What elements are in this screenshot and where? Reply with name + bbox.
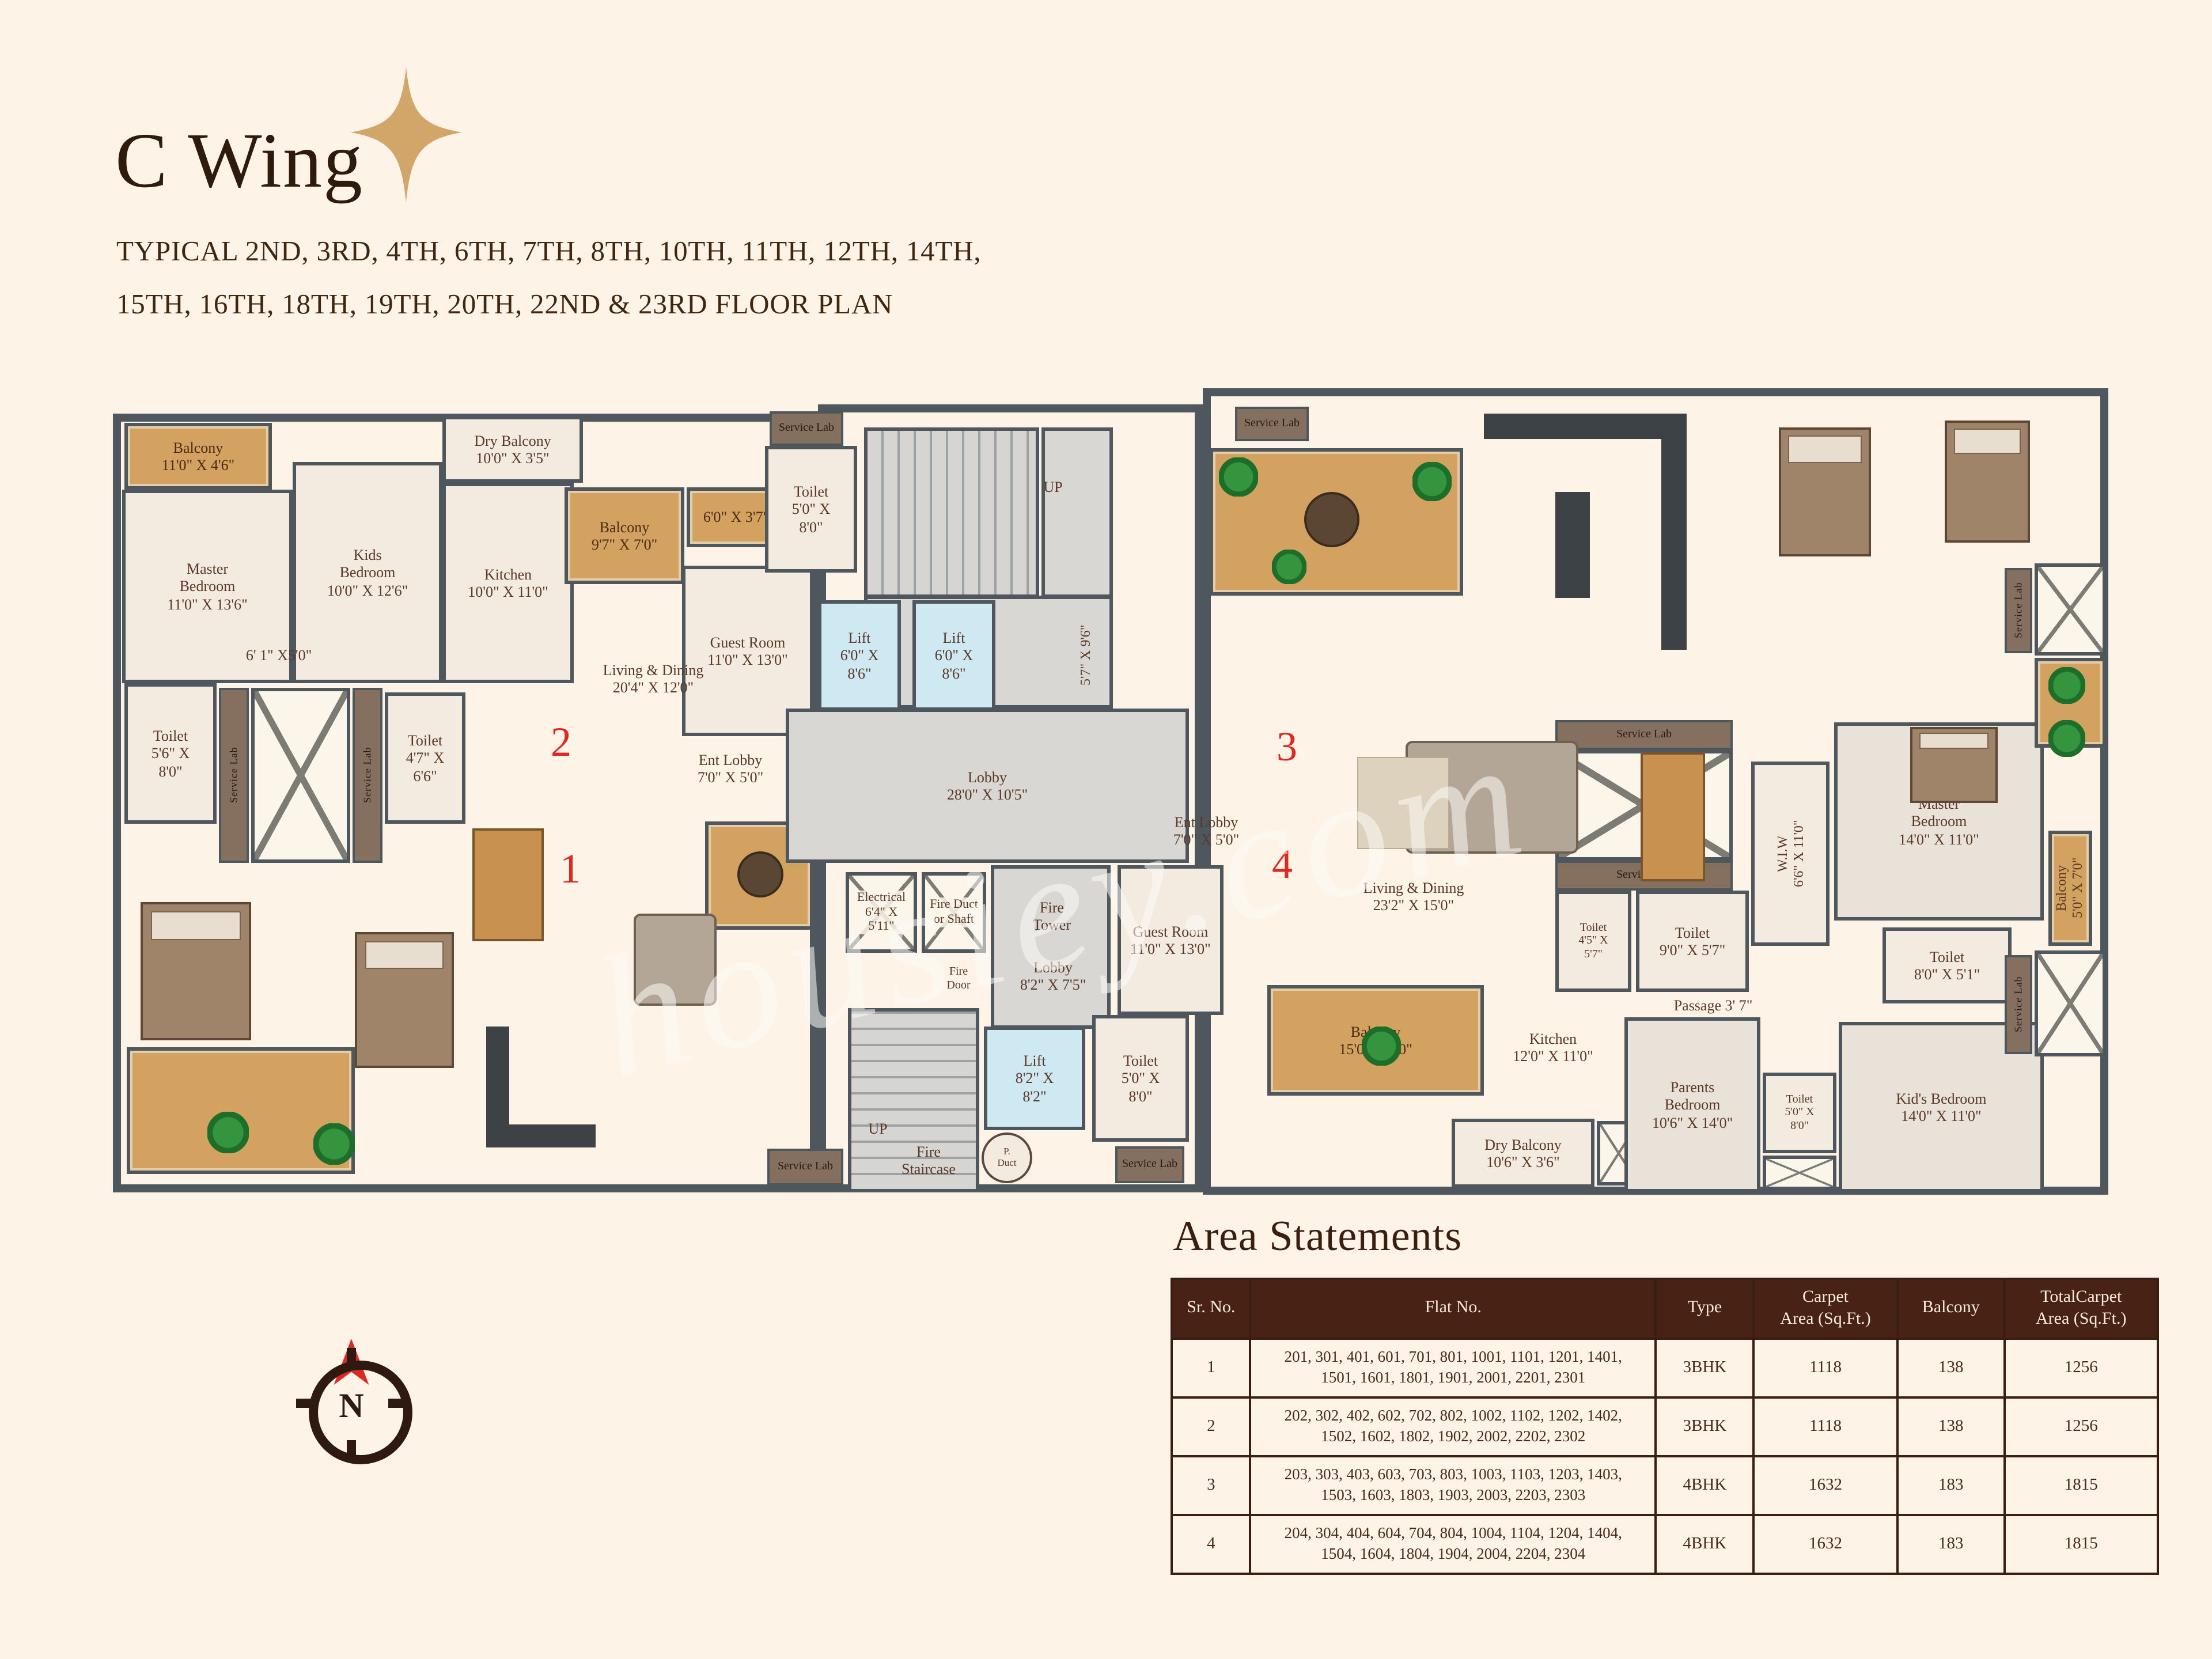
label-passage: Passage 3' 7"	[1627, 992, 1800, 1020]
label-wiw: W.I.W 6'6" X 11'0"	[1763, 768, 1820, 939]
label-fire-door: Fire Door	[926, 960, 991, 999]
floor-plan-sheet: C Wing TYPICAL 2ND, 3RD, 4TH, 6TH, 7TH, …	[0, 0, 2212, 1659]
compass-label: N	[294, 1387, 409, 1426]
room-guest-room-flat4: Guest Room 11'0" X 13'0"	[1118, 865, 1224, 1015]
rug-icon	[1357, 757, 1449, 849]
fire-tower-area	[991, 865, 1111, 1029]
lift-1: Lift 6'0" X 8'6"	[818, 600, 901, 711]
shaft-electrical: Electrical 6'4" X 5'11"	[846, 872, 917, 953]
service-lab-right-1: Service Lab	[1555, 720, 1733, 750]
label-passage-61x50: 6' 1" X5'0"	[221, 641, 336, 671]
plant-icon	[207, 1112, 249, 1153]
label-stair-dim: 5'7" X 9'6"	[1071, 603, 1101, 709]
table-cell-balcony: 138	[1897, 1338, 2004, 1397]
room-toilet-80x51: Toilet 8'0" X 5'1"	[1883, 927, 2012, 1003]
dining-table-icon	[472, 828, 544, 941]
room-kitchen-flat2: Kitchen 10'0" X 11'0"	[442, 483, 574, 683]
subtitle-line1: TYPICAL 2ND, 3RD, 4TH, 6TH, 7TH, 8TH, 10…	[116, 226, 981, 279]
table-column-header: Carpet Area (Sq.Ft.)	[1753, 1279, 1897, 1338]
round-table-icon	[737, 851, 783, 897]
table-cell-carpet: 1118	[1753, 1397, 1897, 1456]
room-toilet-56x80: Toilet 5'6" X 8'0"	[124, 683, 217, 824]
table-row: 3203, 303, 403, 603, 703, 803, 1003, 110…	[1172, 1456, 2158, 1514]
label-kitchen-flat4: Kitchen 12'0" X 11'0"	[1486, 1022, 1620, 1073]
service-lab-left-1: Service Lab	[219, 688, 249, 863]
p-duct: P. Duct	[982, 1132, 1032, 1183]
service-lab-top-1: Service Lab	[770, 411, 843, 446]
area-statements-table: Sr. No.Flat No.TypeCarpet Area (Sq.Ft.)B…	[1171, 1278, 2159, 1574]
subtitle: TYPICAL 2ND, 3RD, 4TH, 6TH, 7TH, 8TH, 10…	[116, 226, 981, 332]
table-column-header: Balcony	[1897, 1279, 2004, 1338]
table-cell-balcony: 183	[1897, 1514, 2004, 1573]
room-balcony-flat2: Balcony 11'0" X 4'6"	[124, 423, 272, 490]
shaft-fire-duct: Fire Duct or Shaft	[922, 872, 986, 953]
service-lab-br: Service Lab	[2005, 955, 2032, 1054]
room-dry-balcony-flat4: Dry Balcony 10'6" X 3'6"	[1452, 1119, 1594, 1188]
table-column-header: TotalCarpet Area (Sq.Ft.)	[2004, 1279, 2158, 1338]
sofa-icon	[634, 914, 717, 1006]
room-balcony-97x70: Balcony 9'7" X 7'0"	[565, 487, 684, 584]
table-cell-type: 4BHK	[1656, 1456, 1753, 1514]
area-statements-title: Area Statements	[1173, 1212, 2161, 1262]
label-balcony-50x70: Balcony 5'0" X 7'0"	[2051, 833, 2090, 944]
floor-plan: housiey.com Balcony 11'0" X 4'6"Master B…	[106, 381, 2111, 1197]
label-up-main: UP	[1028, 474, 1078, 501]
service-lab-top-2: Service Lab	[1235, 407, 1309, 441]
table-cell-sr: 1	[1172, 1338, 1251, 1397]
unit-number-2: 2	[544, 718, 578, 766]
table-cell-flats: 204, 304, 404, 604, 704, 804, 1004, 1104…	[1251, 1514, 1656, 1573]
area-statements: Area Statements Sr. No.Flat No.TypeCarpe…	[1171, 1212, 2161, 1574]
dining-table-icon	[1641, 752, 1705, 881]
table-cell-type: 3BHK	[1656, 1397, 1753, 1456]
room-toilet-90x57: Toilet 9'0" X 5'7"	[1636, 891, 1749, 992]
table-cell-total: 1815	[2004, 1456, 2158, 1514]
page-title: C Wing	[115, 115, 363, 206]
table-header-row: Sr. No.Flat No.TypeCarpet Area (Sq.Ft.)B…	[1172, 1279, 2158, 1338]
unit-number-1: 1	[553, 844, 588, 893]
bed-icon	[141, 902, 251, 1040]
room-dry-balcony-flat2: Dry Balcony 10'0" X 3'5"	[442, 416, 583, 483]
table-body: 1201, 301, 401, 601, 701, 801, 1001, 110…	[1172, 1338, 2158, 1573]
sparkle-icon	[346, 67, 467, 203]
plant-icon	[313, 1123, 355, 1165]
table-column-header: Type	[1656, 1279, 1753, 1338]
plant-icon	[1412, 462, 1452, 501]
table-cell-flats: 203, 303, 403, 603, 703, 803, 1003, 1103…	[1251, 1456, 1656, 1514]
bed-icon	[1779, 427, 1871, 556]
stairs-main	[864, 427, 1039, 598]
unit-number-4: 4	[1265, 840, 1300, 888]
label-fire-lobby: Lobby 8'2" X 7'5"	[1000, 953, 1106, 999]
table-cell-sr: 2	[1172, 1397, 1251, 1456]
shaft-left	[251, 688, 350, 863]
service-lab-bottom-2: Service Lab	[1115, 1146, 1184, 1183]
unit-number-3: 3	[1270, 722, 1304, 771]
label-living-dining-flat4: Living & Dining 23'2" X 15'0"	[1321, 871, 1506, 922]
plant-icon	[2048, 667, 2085, 704]
table-cell-type: 3BHK	[1656, 1338, 1753, 1397]
room-toilet-core-top: Toilet 5'0" X 8'0"	[765, 446, 857, 573]
bed-icon	[1945, 421, 2030, 543]
table-cell-flats: 202, 302, 402, 602, 702, 802, 1002, 1102…	[1251, 1397, 1656, 1456]
table-cell-carpet: 1118	[1753, 1338, 1897, 1397]
plant-icon	[1272, 550, 1306, 584]
label-ent-lobby-left: Ent Lobby 7'0" X 5'0"	[673, 745, 788, 791]
service-lab-bottom-1: Service Lab	[767, 1149, 843, 1185]
table-row: 1201, 301, 401, 601, 701, 801, 1001, 110…	[1172, 1338, 2158, 1397]
table-cell-carpet: 1632	[1753, 1456, 1897, 1514]
room-parents-bedroom: Parents Bedroom 10'6" X 14'0"	[1624, 1017, 1760, 1192]
table-cell-balcony: 138	[1897, 1397, 2004, 1456]
shaft-kids	[1763, 1156, 1836, 1190]
table-cell-sr: 3	[1172, 1456, 1251, 1514]
bed-icon	[355, 932, 454, 1068]
plant-icon	[1219, 457, 1258, 497]
service-lab-left-2: Service Lab	[353, 688, 382, 863]
shaft-br	[2035, 950, 2106, 1056]
label-fire-tower: Fire Tower	[1012, 893, 1092, 939]
table-cell-total: 1256	[2004, 1397, 2158, 1456]
table-row: 2202, 302, 402, 602, 702, 802, 1002, 110…	[1172, 1397, 2158, 1456]
kitchen-counter-icon	[1484, 414, 1685, 439]
room-toilet-45x57: Toilet 4'5" X 5'7"	[1555, 891, 1631, 992]
table-cell-total: 1815	[2004, 1514, 2158, 1573]
lift-2: Lift 6'0" X 8'6"	[912, 600, 995, 711]
service-lab-tr: Service Lab	[2005, 568, 2032, 653]
label-ent-lobby-right: Ent Lobby 7'0" X 5'0"	[1149, 808, 1264, 854]
bed-icon	[1910, 727, 1998, 803]
table-row: 4204, 304, 404, 604, 704, 804, 1004, 110…	[1172, 1514, 2158, 1573]
room-toilet-47x66: Toilet 4'7" X 6'6"	[385, 692, 465, 824]
table-cell-carpet: 1632	[1753, 1514, 1897, 1573]
round-table-icon	[1304, 492, 1359, 547]
table-cell-balcony: 183	[1897, 1456, 2004, 1514]
lift-3: Lift 8'2" X 8'2"	[984, 1027, 1085, 1130]
kitchen-island-icon	[1555, 492, 1590, 598]
table-column-header: Flat No.	[1251, 1279, 1656, 1338]
plant-icon	[1362, 1027, 1401, 1066]
compass-icon: N	[294, 1346, 409, 1461]
shaft-tr	[2035, 563, 2106, 656]
lobby-main: Lobby 28'0" X 10'5"	[786, 709, 1189, 863]
label-living-dining-flat2: Living & Dining 20'4" X 12'0"	[567, 652, 740, 705]
table-column-header: Sr. No.	[1172, 1279, 1251, 1338]
room-toilet-flat4-small: Toilet 5'0" X 8'0"	[1763, 1073, 1836, 1153]
kitchen-counter-icon	[486, 1124, 596, 1147]
table-cell-sr: 4	[1172, 1514, 1251, 1573]
plant-icon	[2048, 720, 2085, 757]
label-fire-staircase: Fire Staircase	[871, 1137, 986, 1183]
table-cell-total: 1256	[2004, 1338, 2158, 1397]
kitchen-counter-icon	[1661, 414, 1687, 650]
room-toilet-core-bottom: Toilet 5'0" X 8'0"	[1092, 1015, 1189, 1142]
subtitle-line2: 15TH, 16TH, 18TH, 19TH, 20TH, 22ND & 23R…	[116, 279, 981, 332]
lobby-arm	[1041, 427, 1113, 598]
table-cell-flats: 201, 301, 401, 601, 701, 801, 1001, 1101…	[1251, 1338, 1656, 1397]
table-cell-type: 4BHK	[1656, 1514, 1753, 1573]
